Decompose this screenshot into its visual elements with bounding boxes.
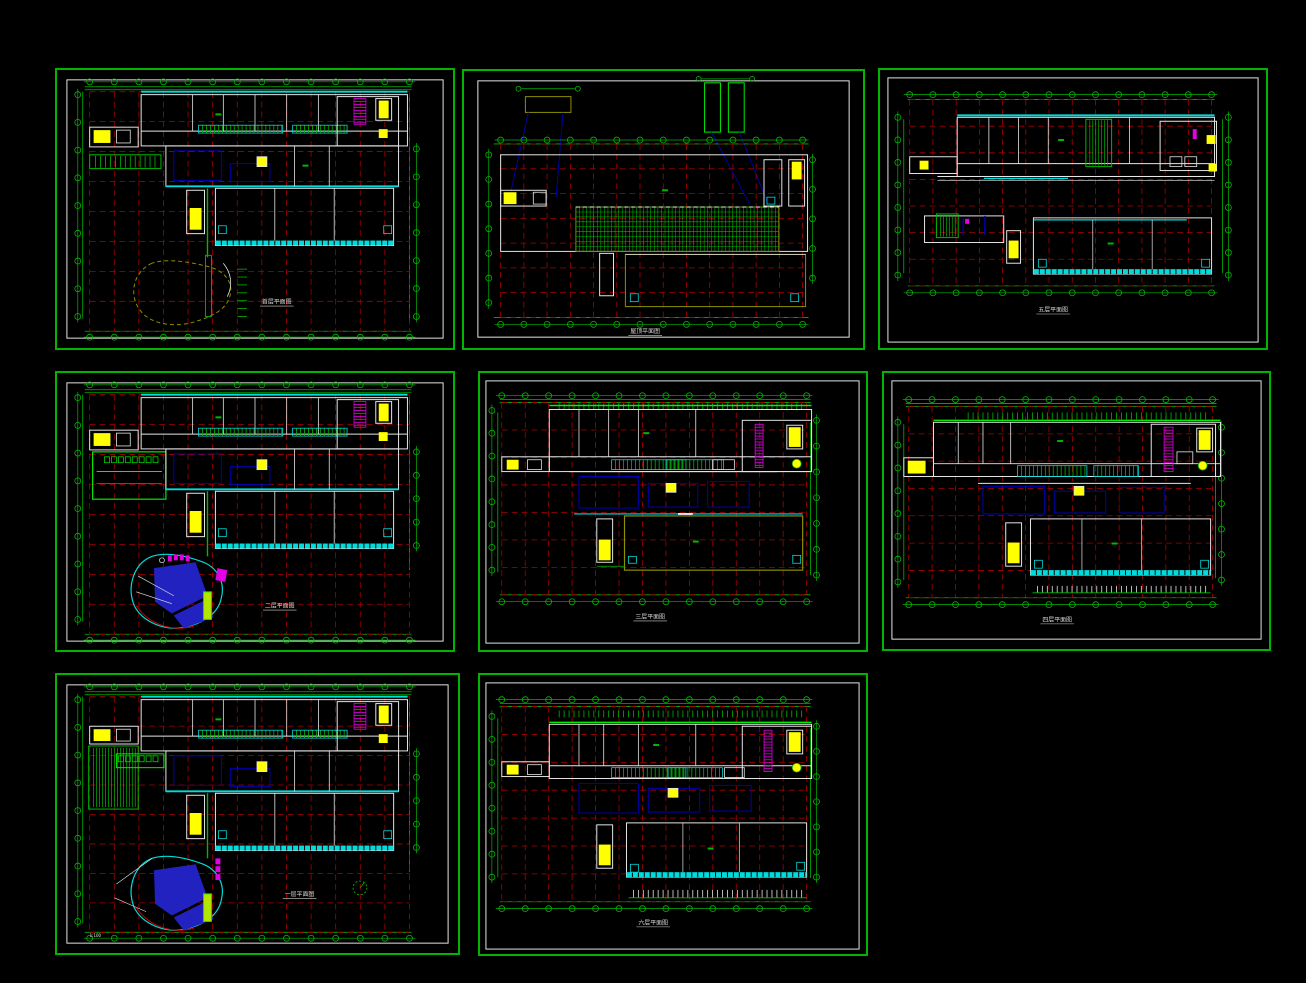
third-floor-plan-drawing: 三层平面图	[480, 373, 866, 650]
plan-title: 一层平面图	[285, 891, 315, 898]
panel-roof-plan: 屋顶平面图	[462, 69, 865, 350]
plan-title: 二层平面图	[265, 603, 295, 610]
fourth-floor-plan-drawing: 四层平面图	[884, 373, 1269, 649]
plan-title: 三层平面图	[635, 613, 665, 620]
panel-ground-floor-plan: 首层平面图	[55, 68, 455, 350]
first-floor-plan-drawing: 1:100一层平面图	[57, 675, 458, 953]
ground-floor-plan-drawing: 首层平面图	[57, 70, 453, 348]
panel-sixth-floor-plan: 六层平面图	[478, 673, 868, 956]
plan-title: 六层平面图	[638, 918, 668, 926]
plan-title: 五层平面图	[1038, 307, 1068, 314]
panel-fifth-floor-plan: 五层平面图	[878, 68, 1268, 350]
second-floor-plan-drawing: 二层平面图	[57, 373, 453, 650]
plan-title: 四层平面图	[1042, 616, 1072, 623]
panel-fourth-floor-plan: 四层平面图	[882, 371, 1271, 651]
sixth-floor-plan-drawing: 六层平面图	[480, 675, 866, 954]
plan-title: 首层平面图	[262, 298, 292, 306]
plan-title: 屋顶平面图	[630, 328, 660, 335]
roof-plan-drawing: 屋顶平面图	[464, 71, 863, 348]
panel-third-floor-plan: 三层平面图	[478, 371, 868, 652]
plan-annotation-text: 1:100	[90, 933, 102, 938]
cad-sheet-canvas: 首层平面图 屋顶平面图 五层平面图 二层平面图 三层平面图 四层平面图 1:10…	[0, 0, 1306, 983]
panel-second-floor-plan: 二层平面图	[55, 371, 455, 652]
fifth-floor-plan-drawing: 五层平面图	[880, 70, 1266, 348]
panel-first-floor-plan: 1:100一层平面图	[55, 673, 460, 955]
